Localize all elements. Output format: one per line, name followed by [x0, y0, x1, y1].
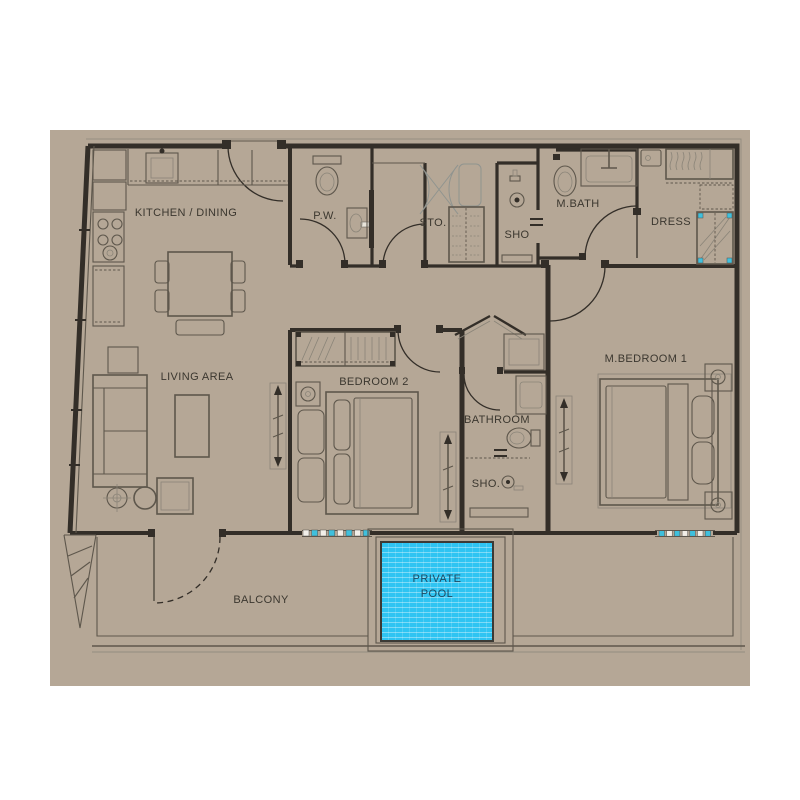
entry-door-leaf	[369, 190, 374, 248]
label-master-bedroom: M.BEDROOM 1	[605, 353, 688, 365]
label-bedroom2: BEDROOM 2	[339, 376, 409, 388]
label-balcony: BALCONY	[233, 594, 289, 606]
label-bathroom: BATHROOM	[464, 414, 530, 426]
label-shower-top: SHO	[504, 229, 529, 241]
label-powder-room: P.W.	[313, 210, 336, 222]
label-pool-line2: POOL	[421, 588, 454, 600]
floor-plan-page: KITCHEN / DINING P.W. STO. SHO M.BATH DR…	[0, 0, 800, 800]
label-shower-bottom: SHO.	[472, 478, 501, 490]
label-kitchen-dining: KITCHEN / DINING	[135, 207, 237, 219]
floor-plan-canvas: KITCHEN / DINING P.W. STO. SHO M.BATH DR…	[0, 0, 800, 800]
label-master-bath: M.BATH	[556, 198, 599, 210]
label-living-area: LIVING AREA	[161, 371, 234, 383]
label-storage: STO.	[419, 217, 446, 229]
label-dressing: DRESS	[651, 216, 691, 228]
label-pool-line1: PRIVATE	[413, 573, 462, 585]
